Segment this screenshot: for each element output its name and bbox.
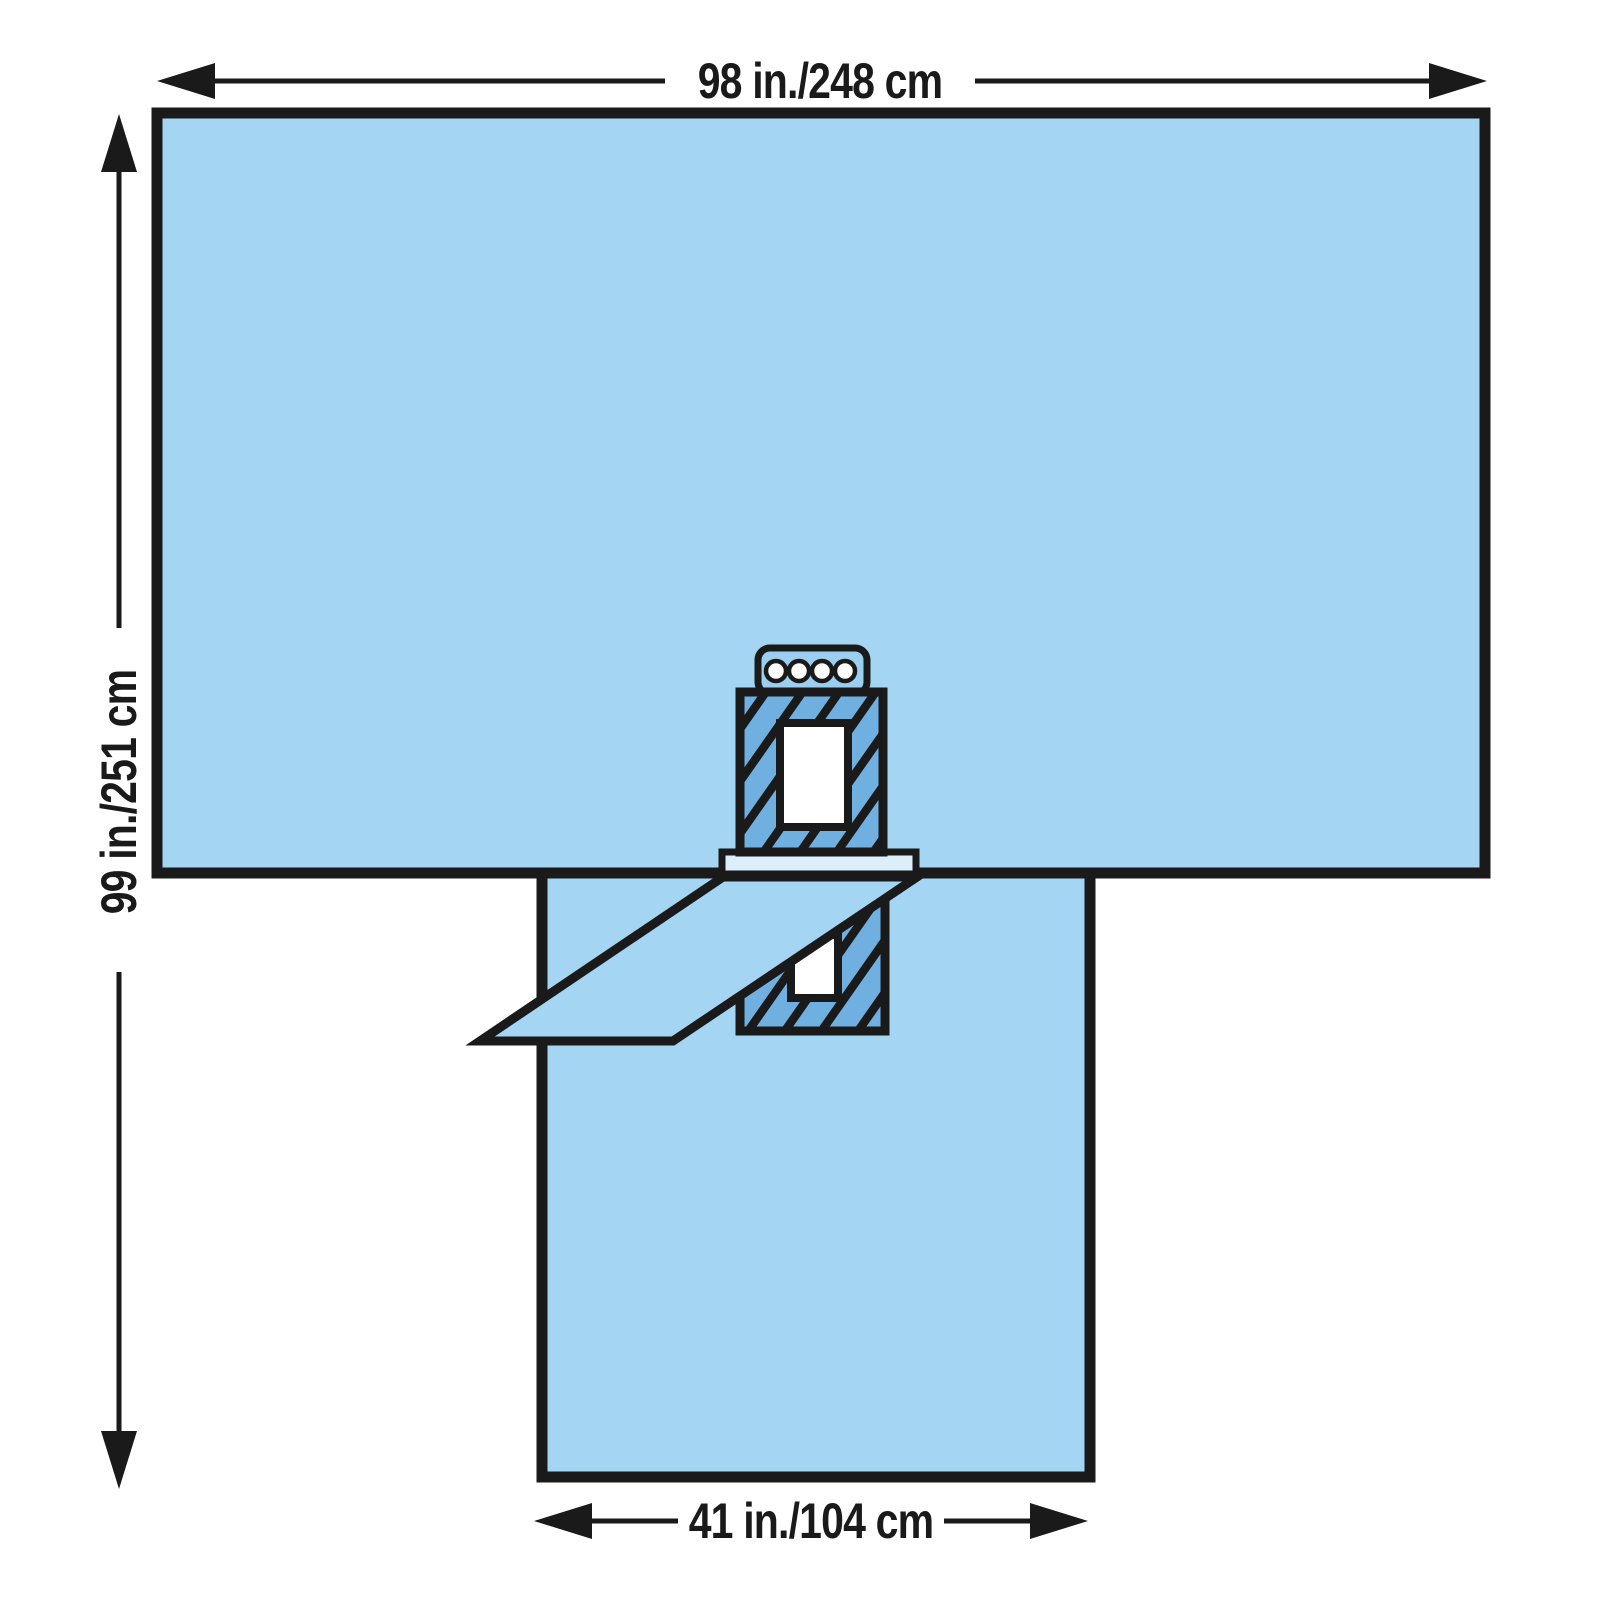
left-arrowhead-down bbox=[101, 1431, 137, 1489]
top-dimension-label: 98 in./248 cm bbox=[698, 52, 943, 110]
bottom-arrowhead-left bbox=[534, 1503, 592, 1539]
left-arrowhead-up bbox=[101, 114, 137, 172]
top-arrowhead-left bbox=[157, 63, 215, 99]
left-dimension-label: 99 in./251 cm bbox=[90, 670, 148, 915]
tube-holder-hole-2 bbox=[789, 661, 809, 681]
top-arrowhead-right bbox=[1429, 63, 1487, 99]
upper-aperture bbox=[780, 723, 848, 827]
tube-holder-hole-4 bbox=[835, 661, 855, 681]
surgical-drape-diagram bbox=[0, 0, 1600, 1600]
diagram-canvas: 98 in./248 cm 99 in./251 cm 41 in./104 c… bbox=[0, 0, 1600, 1600]
bottom-arrowhead-right bbox=[1030, 1503, 1088, 1539]
bottom-dimension-label: 41 in./104 cm bbox=[689, 1492, 934, 1550]
tube-holder-hole-3 bbox=[812, 661, 832, 681]
tube-holder-hole-1 bbox=[766, 661, 786, 681]
